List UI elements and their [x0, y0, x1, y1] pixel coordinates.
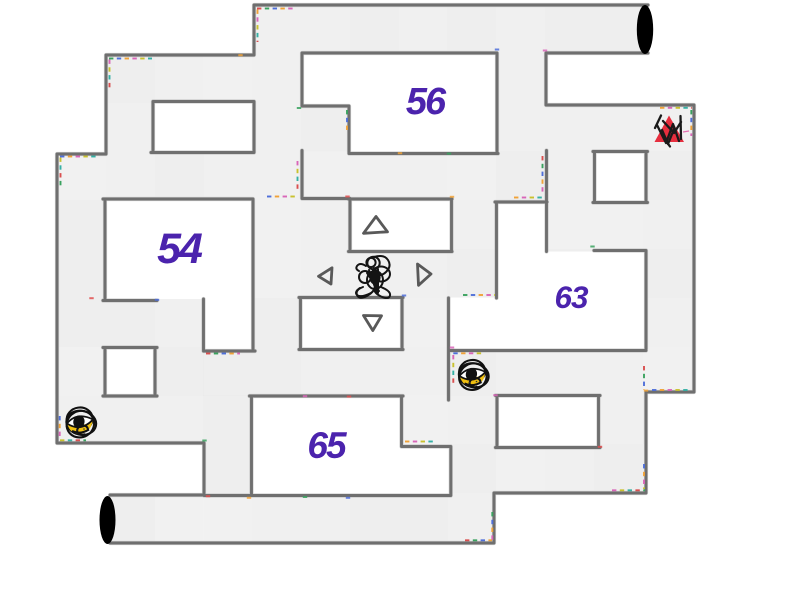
svg-text:56: 56: [406, 81, 447, 123]
svg-text:63: 63: [554, 279, 589, 315]
svg-text:65: 65: [307, 425, 348, 466]
svg-text:54: 54: [157, 225, 203, 273]
